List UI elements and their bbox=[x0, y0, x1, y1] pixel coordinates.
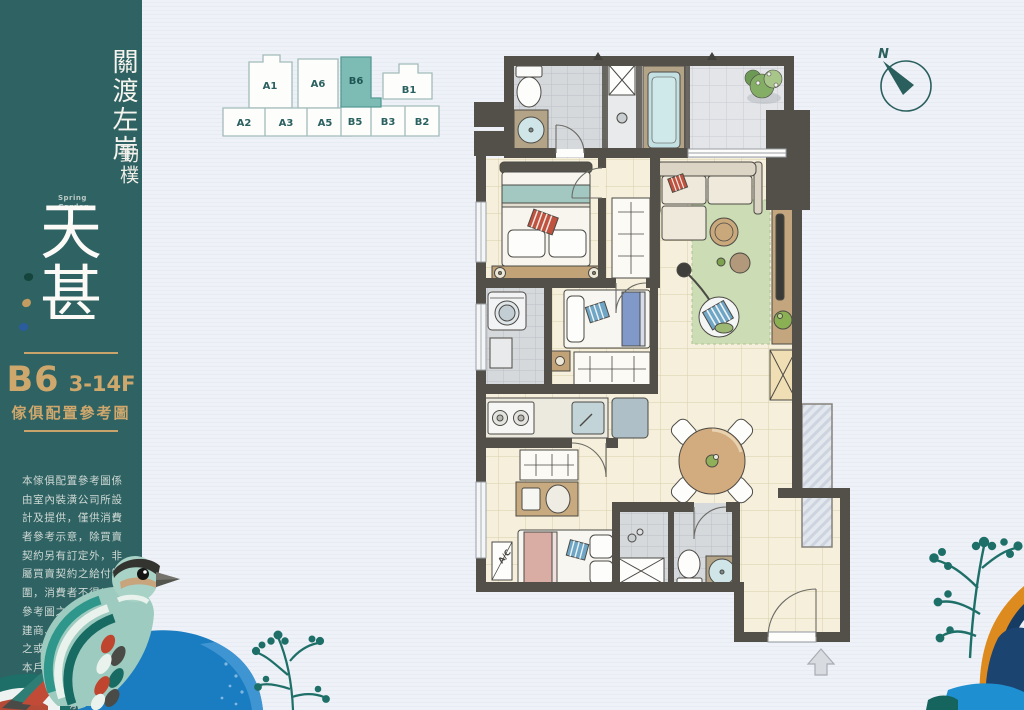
work-balcony-floor bbox=[480, 282, 544, 394]
dining-set bbox=[669, 416, 756, 505]
plant-sprig-left bbox=[238, 615, 348, 710]
floor-range: 3-14F bbox=[69, 372, 136, 396]
bathroom2-floor bbox=[612, 510, 740, 590]
orange-stroke bbox=[979, 586, 1024, 710]
key-plan-building-b bbox=[341, 64, 439, 136]
water-heater bbox=[490, 338, 512, 368]
brochure-page: 關渡左岸 勤樸 Spring Garden 天 甚 B6 3-14F 傢俱配置參… bbox=[0, 0, 1024, 710]
navy-stroke bbox=[988, 602, 1024, 710]
building-key-plan: A1 A6 A2 A3 A5 B6 B1 B5 B3 B2 bbox=[203, 46, 447, 148]
hall-cabinet bbox=[770, 350, 796, 400]
bedroom3-desk bbox=[516, 482, 578, 516]
washing-machine bbox=[488, 292, 526, 330]
coffee-tables bbox=[710, 218, 750, 273]
entry-arrow bbox=[808, 649, 834, 675]
balcony-plant bbox=[745, 70, 782, 104]
bathroom1-floor bbox=[508, 60, 606, 158]
ac-ledge bbox=[802, 404, 832, 547]
sprig-branches bbox=[253, 632, 329, 710]
master-bed-bench bbox=[492, 266, 602, 280]
unit-code: B6 bbox=[6, 360, 59, 400]
key-plan-label-a1: A1 bbox=[263, 81, 278, 92]
bathroom1-fixtures bbox=[514, 66, 548, 150]
key-plan-label-a6: A6 bbox=[311, 79, 326, 90]
unit-title: B6 3-14F bbox=[0, 360, 142, 400]
bedroom2-nightstand bbox=[550, 351, 570, 371]
logo-char-bottom-wrap: 甚 bbox=[40, 263, 102, 326]
compass: N bbox=[856, 36, 948, 128]
tub-room-floor bbox=[640, 60, 688, 158]
compass-circle bbox=[881, 61, 931, 111]
brand-name: 勤樸 bbox=[0, 144, 142, 186]
ac-unit bbox=[492, 542, 512, 580]
ac-label: A/C bbox=[496, 548, 512, 565]
floor-lamp bbox=[677, 263, 712, 304]
logo-char-bottom: 甚 bbox=[40, 263, 102, 326]
compass-needle bbox=[883, 61, 914, 95]
bedroom2-wardrobe bbox=[574, 352, 650, 386]
logo-dot-blue bbox=[18, 322, 30, 333]
walls bbox=[474, 56, 850, 642]
utility-cabinet bbox=[609, 65, 635, 123]
bedroom3-closet bbox=[520, 450, 578, 480]
divider-line-top bbox=[24, 352, 118, 354]
key-plan-label-b2: B2 bbox=[415, 117, 430, 128]
corner-art-right bbox=[918, 528, 1024, 710]
hanging-chair bbox=[699, 297, 739, 337]
logo-dot-tan bbox=[21, 299, 31, 308]
living-dining-floor bbox=[606, 158, 850, 640]
logo-dot-green bbox=[23, 272, 34, 282]
refrigerator bbox=[612, 398, 648, 438]
navy-mass bbox=[986, 627, 1024, 710]
windows bbox=[476, 52, 786, 558]
room-floors bbox=[480, 60, 850, 640]
master-bedroom-floor bbox=[480, 158, 606, 282]
kitchen-hall-floor bbox=[480, 394, 658, 518]
key-plan-label-b5: B5 bbox=[348, 117, 363, 128]
cyan-wave bbox=[942, 683, 1024, 710]
product-logo: 天 甚 bbox=[0, 200, 142, 326]
tv-console bbox=[772, 204, 794, 344]
floor-plan: A/C bbox=[472, 52, 864, 677]
key-plan-label-a3: A3 bbox=[279, 118, 294, 129]
divider-line-bottom bbox=[24, 430, 118, 432]
bathroom2-fixtures bbox=[618, 529, 738, 588]
key-plan-unit-b6-highlight bbox=[341, 57, 381, 107]
master-bed bbox=[500, 162, 592, 266]
key-plan-label-b6: B6 bbox=[349, 76, 364, 87]
teal-wave bbox=[926, 696, 958, 710]
key-plan-label-b3: B3 bbox=[381, 117, 396, 128]
bedroom3-bed bbox=[518, 530, 618, 587]
key-plan-label-b1: B1 bbox=[402, 85, 417, 96]
living-rug bbox=[692, 200, 770, 344]
bedroom2-floor bbox=[544, 282, 658, 394]
front-balcony-floor bbox=[688, 60, 788, 158]
bedroom3-floor bbox=[480, 448, 620, 592]
logo-char-top: 天 bbox=[0, 200, 142, 263]
kitchen-counter bbox=[484, 398, 608, 438]
disclaimer-text: 本傢俱配置參考圖係由室內裝潢公司所設計及提供，僅供消費者參考示意，除買賣契約另有… bbox=[22, 472, 122, 710]
berry-tree bbox=[930, 538, 1021, 658]
key-plan-label-a5: A5 bbox=[318, 118, 333, 129]
bathtub bbox=[643, 66, 685, 154]
key-plan-label-a2: A2 bbox=[237, 118, 252, 129]
utility-closet-floor bbox=[606, 60, 640, 158]
key-plan-building-a bbox=[223, 55, 351, 136]
compass-north-label: N bbox=[878, 47, 889, 62]
bedroom2-bed bbox=[564, 290, 650, 348]
sofa bbox=[652, 162, 762, 240]
plan-caption: 傢俱配置參考圖 bbox=[0, 402, 142, 423]
sidebar-panel: 關渡左岸 勤樸 Spring Garden 天 甚 B6 3-14F 傢俱配置參… bbox=[0, 0, 142, 710]
corridor-wardrobe bbox=[612, 198, 650, 278]
furniture-layer bbox=[484, 65, 796, 588]
door-swings bbox=[556, 125, 816, 642]
key-plan-labels: A1 A6 A2 A3 A5 B6 B1 B5 B3 B2 bbox=[237, 76, 430, 129]
